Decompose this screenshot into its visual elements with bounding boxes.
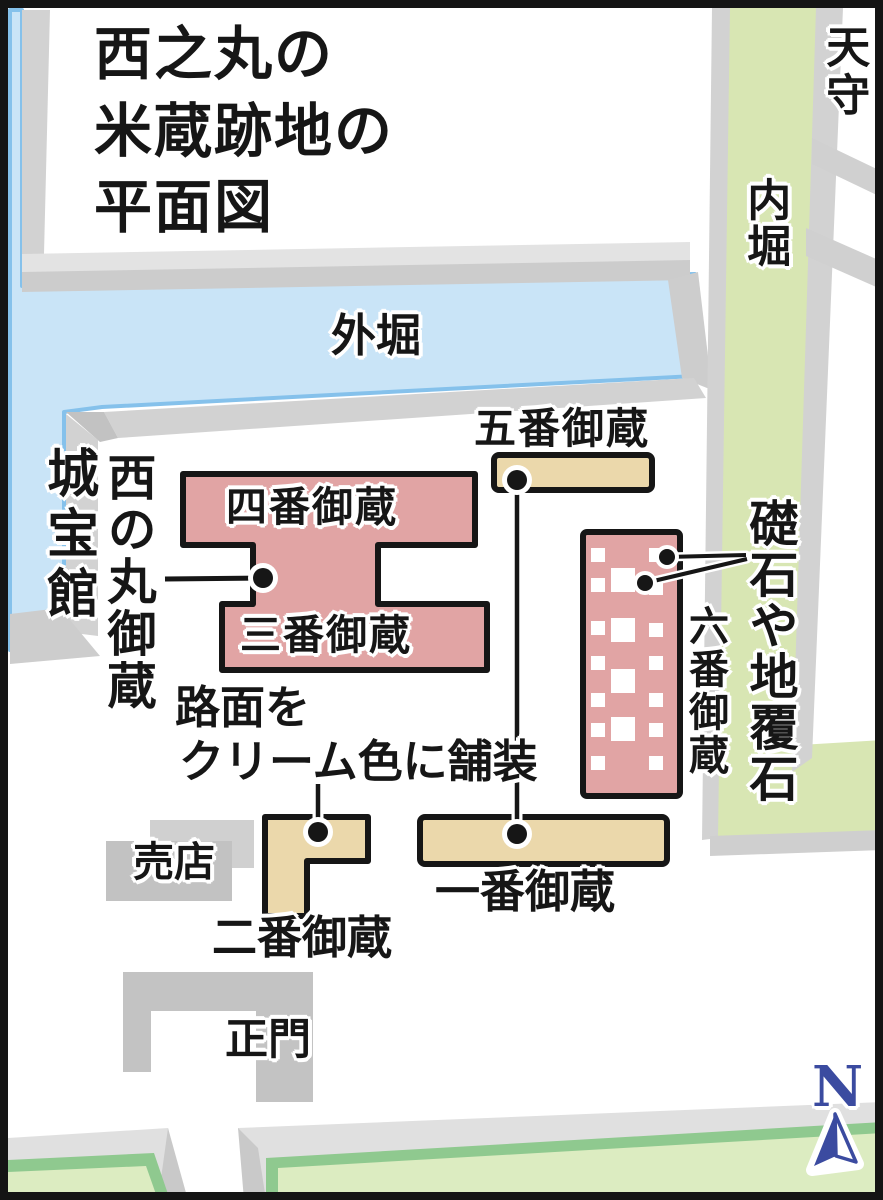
- page-title: 西之丸の 米蔵跡地の 平面図: [94, 16, 394, 246]
- foundation-stone-square: [591, 756, 605, 770]
- leader-dot: [659, 549, 675, 565]
- foundation-stone-square: [591, 578, 605, 592]
- foundation-stone-square: [649, 756, 663, 770]
- label-warehouse-2: 二番御蔵: [212, 914, 392, 961]
- warehouse-1-building: [420, 817, 667, 864]
- label-shop: 売店: [133, 841, 215, 884]
- label-outer-moat: 外堀: [331, 312, 421, 359]
- annotation-pavement-line1: 路面を: [175, 684, 310, 731]
- foundation-stone-square: [611, 669, 635, 693]
- foundation-stone-square: [591, 723, 605, 737]
- label-inner-moat: 内堀: [741, 177, 787, 269]
- leader-dot: [507, 824, 527, 844]
- label-warehouse-3: 三番御蔵: [240, 614, 412, 657]
- label-treasure-hall: 城宝館: [40, 446, 95, 626]
- foundation-stone-square: [649, 656, 663, 670]
- label-warehouse-1: 一番御蔵: [435, 868, 615, 915]
- foundation-stone-square: [649, 623, 663, 637]
- label-warehouse-5: 五番御蔵: [474, 407, 650, 451]
- label-nishinomaru-warehouse: 西の丸御蔵: [102, 452, 153, 712]
- annotation-pavement-line2: クリーム色に舗装: [179, 738, 538, 785]
- label-warehouse-6: 六番御蔵: [684, 605, 726, 777]
- foundation-stone-square: [591, 693, 605, 707]
- north-label: N: [812, 1058, 863, 1117]
- foundation-stone-square: [611, 568, 635, 592]
- leader-dot: [253, 568, 273, 588]
- leader-dot: [507, 470, 527, 490]
- foundation-stone-square: [611, 618, 635, 642]
- foundation-stone-square: [591, 656, 605, 670]
- leader-dot: [308, 822, 328, 842]
- label-warehouse-4: 四番御蔵: [226, 486, 398, 529]
- title-line: 西之丸の: [94, 16, 394, 93]
- foundation-stone-square: [649, 693, 663, 707]
- map-canvas: 西之丸の 米蔵跡地の 平面図 外堀 天守 内堀 城宝館 西の丸御蔵 四番御蔵 三…: [0, 0, 883, 1200]
- title-line: 米蔵跡地の: [94, 93, 394, 170]
- stone-wall: [22, 10, 50, 256]
- foundation-stone-square: [591, 621, 605, 635]
- foundation-stone-square: [591, 548, 605, 562]
- leader-dot: [637, 575, 653, 591]
- annotation-foundation-stones: 礎石や地覆石: [744, 498, 795, 804]
- title-line: 平面図: [94, 169, 394, 246]
- label-main-gate: 正門: [225, 1018, 311, 1063]
- label-castle-keep: 天守: [820, 24, 866, 120]
- foundation-stone-square: [649, 723, 663, 737]
- foundation-stone-square: [611, 717, 635, 741]
